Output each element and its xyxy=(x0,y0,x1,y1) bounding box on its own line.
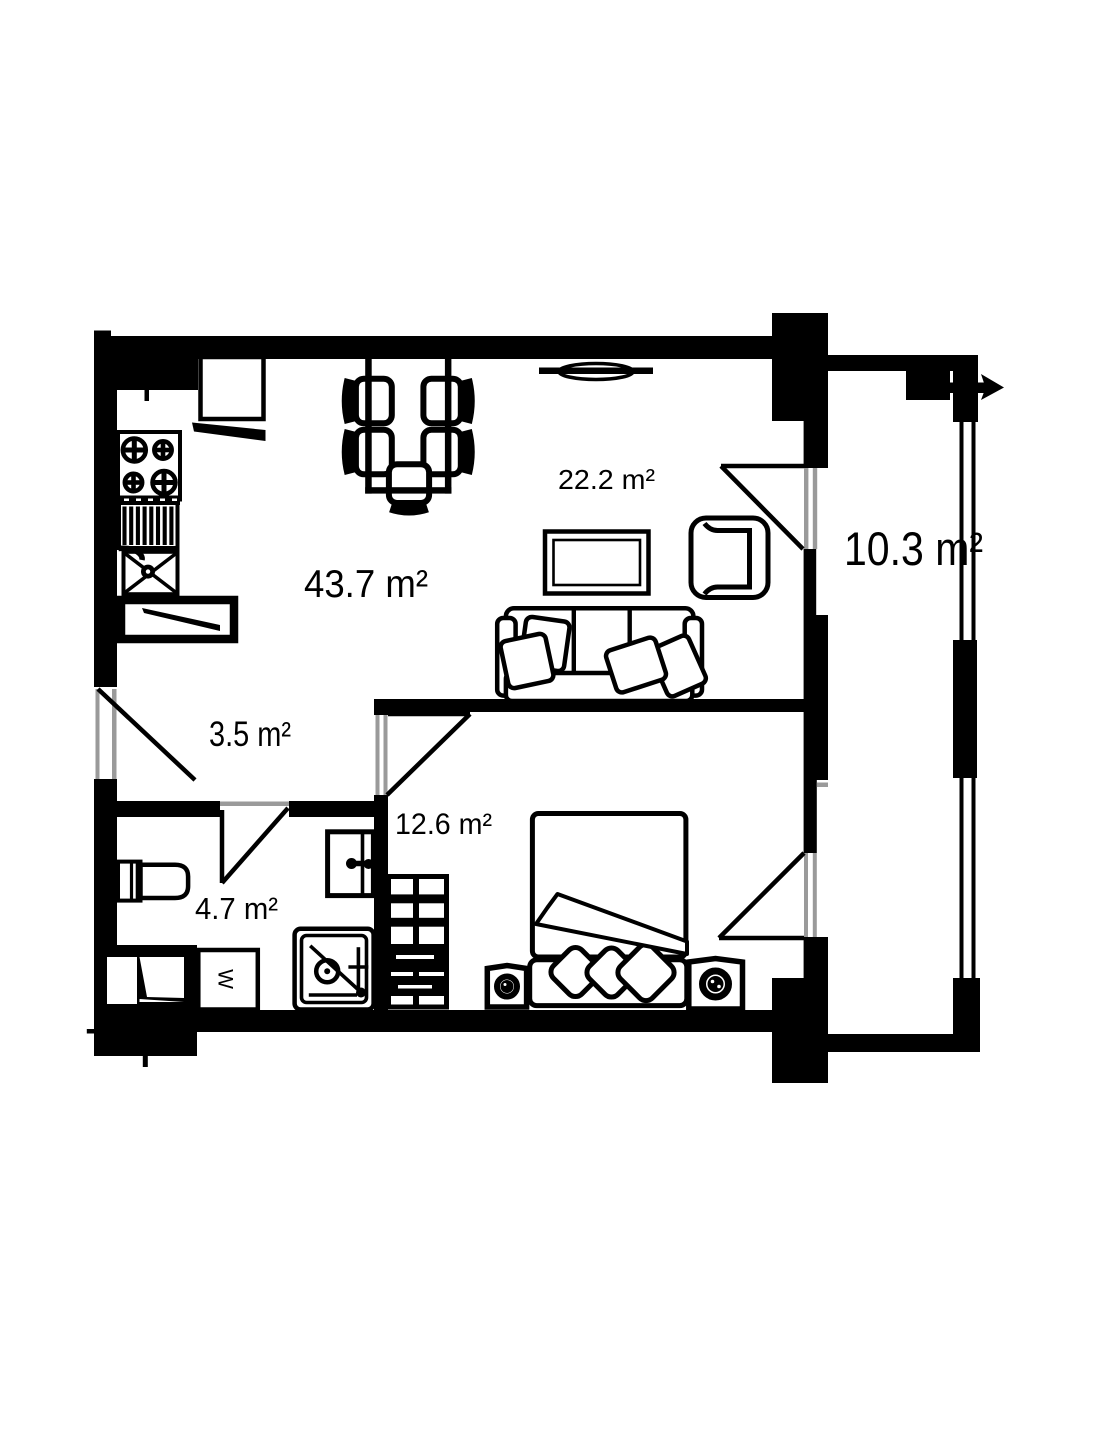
svg-text:3.5 m²: 3.5 m² xyxy=(209,715,291,754)
svg-text:4.7 m²: 4.7 m² xyxy=(195,891,278,926)
svg-text:10.3 m²: 10.3 m² xyxy=(844,522,983,575)
svg-text:12.6 m²: 12.6 m² xyxy=(395,808,492,841)
svg-text:43.7 m²: 43.7 m² xyxy=(304,563,428,606)
svg-text:W: W xyxy=(214,969,237,989)
svg-text:22.2 m²: 22.2 m² xyxy=(558,464,655,495)
